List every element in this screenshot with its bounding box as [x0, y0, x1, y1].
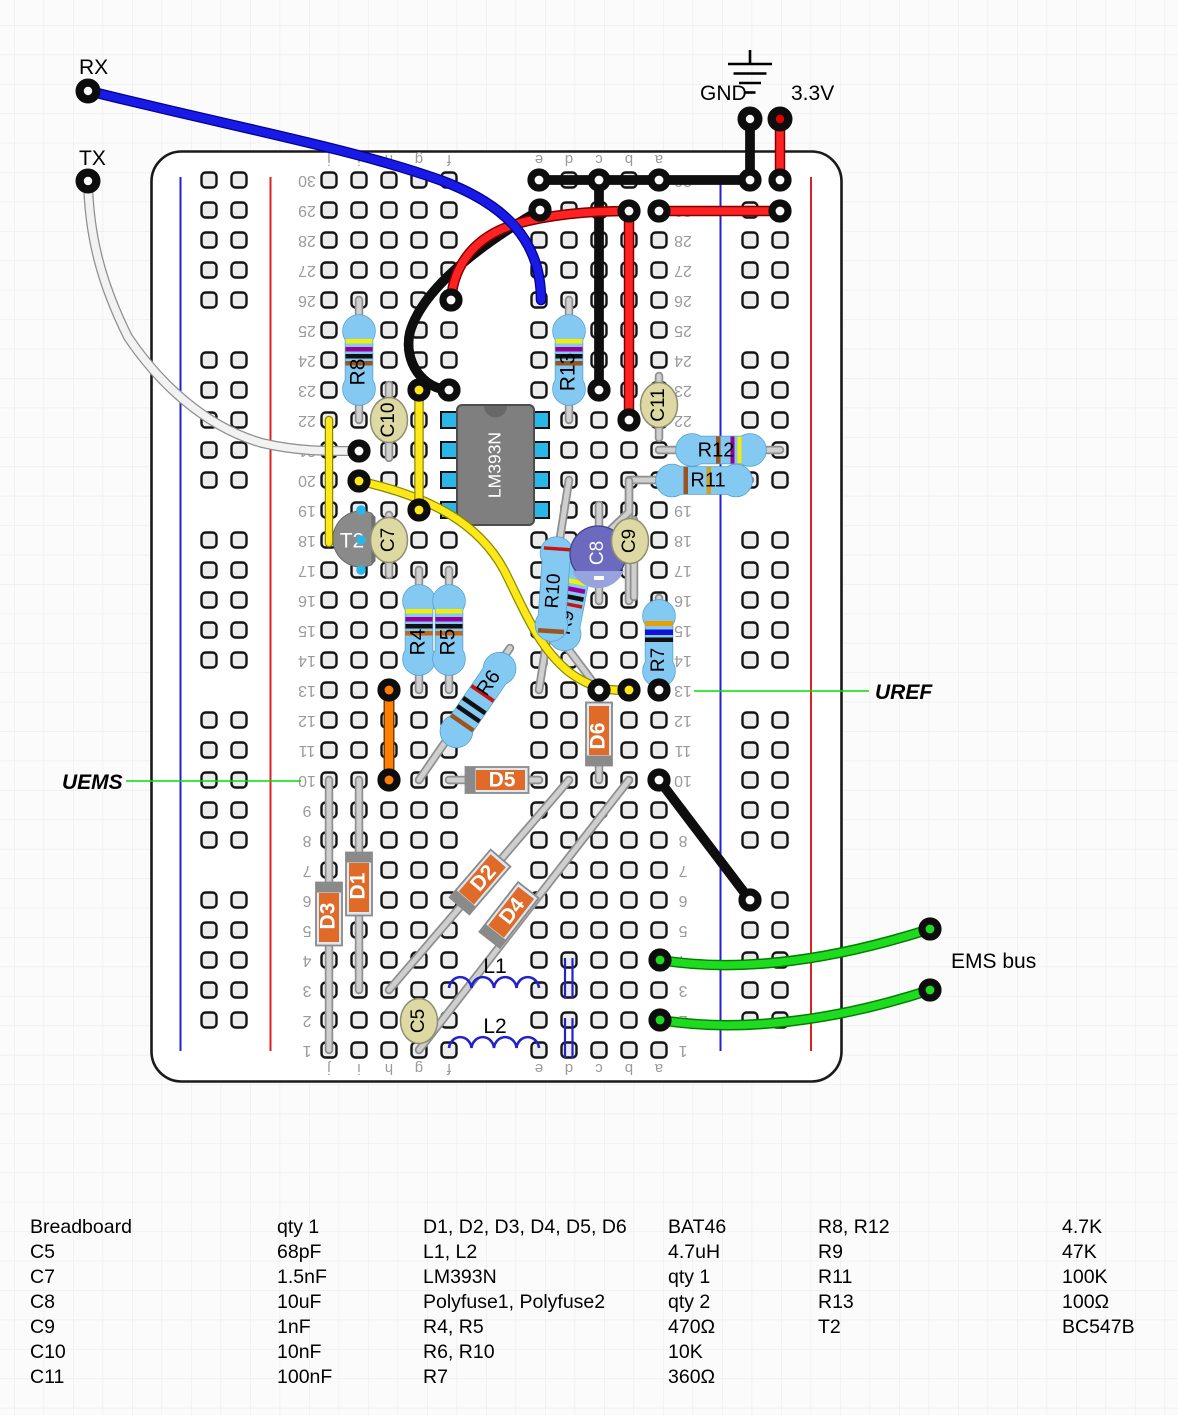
svg-text:C7: C7 [30, 1266, 55, 1288]
svg-text:17: 17 [298, 562, 316, 579]
svg-text:8: 8 [302, 832, 311, 849]
svg-text:4: 4 [302, 952, 311, 969]
svg-text:26: 26 [298, 292, 316, 309]
svg-text:C11: C11 [648, 388, 669, 421]
svg-text:EMS bus: EMS bus [951, 950, 1036, 973]
svg-text:10uF: 10uF [277, 1291, 322, 1313]
svg-text:C5: C5 [408, 1009, 429, 1033]
svg-text:27: 27 [298, 262, 316, 279]
svg-text:1nF: 1nF [277, 1316, 311, 1338]
svg-text:b: b [625, 151, 633, 168]
svg-text:23: 23 [298, 382, 316, 399]
svg-text:11: 11 [299, 742, 316, 759]
svg-text:g: g [415, 1060, 423, 1077]
svg-text:R5: R5 [437, 629, 460, 656]
svg-text:1: 1 [678, 1042, 687, 1059]
svg-text:10nF: 10nF [277, 1341, 322, 1363]
svg-text:19: 19 [674, 502, 692, 519]
svg-text:qty 1: qty 1 [668, 1266, 710, 1288]
svg-text:20: 20 [298, 472, 316, 489]
svg-text:28: 28 [298, 232, 316, 249]
svg-text:5: 5 [678, 922, 687, 939]
svg-text:13: 13 [674, 682, 692, 699]
svg-text:25: 25 [298, 322, 316, 339]
svg-text:14: 14 [298, 652, 316, 669]
svg-text:C11: C11 [30, 1366, 64, 1388]
svg-text:e: e [535, 151, 543, 168]
svg-text:4.7uH: 4.7uH [668, 1241, 720, 1263]
svg-text:C10: C10 [30, 1341, 66, 1363]
svg-text:Polyfuse1, Polyfuse2: Polyfuse1, Polyfuse2 [423, 1291, 605, 1313]
svg-text:27: 27 [674, 262, 692, 279]
svg-text:D6: D6 [587, 723, 610, 750]
svg-text:L1: L1 [483, 955, 506, 978]
svg-text:15: 15 [298, 622, 316, 639]
svg-text:7: 7 [302, 862, 311, 879]
svg-text:4.7K: 4.7K [1062, 1216, 1102, 1238]
svg-text:R8, R12: R8, R12 [818, 1216, 890, 1238]
svg-text:d: d [565, 1060, 573, 1077]
svg-text:j: j [327, 1060, 331, 1077]
svg-text:10: 10 [674, 772, 692, 789]
svg-text:100K: 100K [1062, 1266, 1108, 1288]
svg-text:26: 26 [674, 292, 692, 309]
svg-text:18: 18 [298, 532, 316, 549]
svg-text:360Ω: 360Ω [668, 1366, 715, 1388]
svg-text:470Ω: 470Ω [668, 1316, 715, 1338]
svg-text:24: 24 [298, 352, 316, 369]
svg-text:68pF: 68pF [277, 1241, 322, 1263]
svg-text:L2: L2 [483, 1015, 506, 1038]
svg-text:RX: RX [79, 56, 108, 79]
svg-text:3: 3 [678, 982, 687, 999]
svg-text:3.3V: 3.3V [791, 82, 834, 105]
svg-text:T2: T2 [818, 1316, 841, 1338]
svg-text:BAT46: BAT46 [668, 1216, 726, 1238]
svg-text:C8: C8 [30, 1291, 55, 1313]
svg-text:R13: R13 [557, 353, 580, 392]
svg-text:13: 13 [298, 682, 316, 699]
svg-text:17: 17 [674, 562, 692, 579]
svg-text:BC547B: BC547B [1062, 1316, 1135, 1338]
svg-text:100nF: 100nF [277, 1366, 332, 1388]
svg-text:R7: R7 [648, 648, 669, 672]
svg-text:25: 25 [674, 322, 692, 339]
svg-text:10K: 10K [668, 1341, 703, 1363]
svg-text:LM393N: LM393N [485, 432, 505, 498]
svg-text:12: 12 [298, 712, 316, 729]
svg-text:i: i [357, 1060, 360, 1077]
svg-text:UEMS: UEMS [62, 771, 123, 794]
svg-text:a: a [654, 151, 663, 168]
svg-text:30: 30 [298, 172, 316, 189]
svg-text:c: c [595, 1060, 603, 1077]
svg-text:28: 28 [674, 232, 692, 249]
svg-text:19: 19 [298, 502, 316, 519]
svg-text:C9: C9 [30, 1316, 55, 1338]
svg-text:18: 18 [674, 532, 692, 549]
svg-text:16: 16 [298, 592, 316, 609]
svg-text:C9: C9 [619, 529, 640, 553]
svg-text:R10: R10 [542, 573, 565, 609]
svg-text:7: 7 [678, 862, 687, 879]
svg-text:c: c [595, 151, 603, 168]
svg-text:R4: R4 [407, 628, 430, 655]
svg-text:R4, R5: R4, R5 [423, 1316, 484, 1338]
svg-text:a: a [654, 1060, 663, 1077]
svg-text:D1: D1 [347, 872, 370, 899]
svg-text:L1, L2: L1, L2 [423, 1241, 477, 1263]
svg-text:qty 2: qty 2 [668, 1291, 710, 1313]
svg-text:UREF: UREF [875, 681, 933, 704]
svg-text:R8: R8 [347, 359, 370, 386]
svg-text:12: 12 [674, 712, 692, 729]
svg-text:C8: C8 [587, 541, 608, 565]
svg-text:C7: C7 [378, 528, 399, 552]
svg-text:14: 14 [674, 652, 692, 669]
svg-text:R7: R7 [423, 1366, 448, 1388]
svg-text:e: e [535, 1060, 543, 1077]
svg-text:TX: TX [79, 147, 106, 170]
svg-text:C10: C10 [378, 403, 399, 438]
svg-text:2: 2 [302, 1012, 311, 1029]
svg-text:R9: R9 [818, 1241, 843, 1263]
svg-text:g: g [415, 151, 423, 168]
svg-text:16: 16 [674, 592, 692, 609]
svg-text:29: 29 [298, 202, 316, 219]
svg-text:3: 3 [302, 982, 311, 999]
svg-text:24: 24 [674, 352, 692, 369]
svg-text:qty 1: qty 1 [277, 1216, 319, 1238]
svg-text:C5: C5 [30, 1241, 55, 1263]
svg-text:1.5nF: 1.5nF [277, 1266, 327, 1288]
svg-text:1: 1 [302, 1042, 311, 1059]
svg-text:R12: R12 [698, 439, 735, 461]
svg-text:R11: R11 [818, 1266, 852, 1288]
svg-text:D3: D3 [317, 903, 340, 930]
svg-text:15: 15 [674, 622, 692, 639]
svg-text:h: h [385, 1060, 393, 1077]
svg-text:D5: D5 [489, 769, 516, 792]
svg-text:Breadboard: Breadboard [30, 1216, 132, 1238]
svg-text:9: 9 [302, 802, 311, 819]
svg-text:b: b [625, 1060, 633, 1077]
svg-text:LM393N: LM393N [423, 1266, 497, 1288]
svg-text:100Ω: 100Ω [1062, 1291, 1109, 1313]
svg-text:R13: R13 [818, 1291, 854, 1313]
svg-text:R11: R11 [690, 469, 725, 491]
svg-text:6: 6 [678, 892, 687, 909]
svg-text:11: 11 [675, 742, 692, 759]
svg-text:6: 6 [302, 892, 311, 909]
svg-text:8: 8 [678, 832, 687, 849]
svg-text:R6, R10: R6, R10 [423, 1341, 495, 1363]
svg-text:22: 22 [298, 412, 316, 429]
svg-text:47K: 47K [1062, 1241, 1097, 1263]
svg-text:d: d [565, 151, 573, 168]
svg-text:5: 5 [302, 922, 311, 939]
svg-text:D1, D2, D3, D4, D5, D6: D1, D2, D3, D4, D5, D6 [423, 1216, 627, 1238]
svg-text:GND: GND [700, 82, 747, 105]
